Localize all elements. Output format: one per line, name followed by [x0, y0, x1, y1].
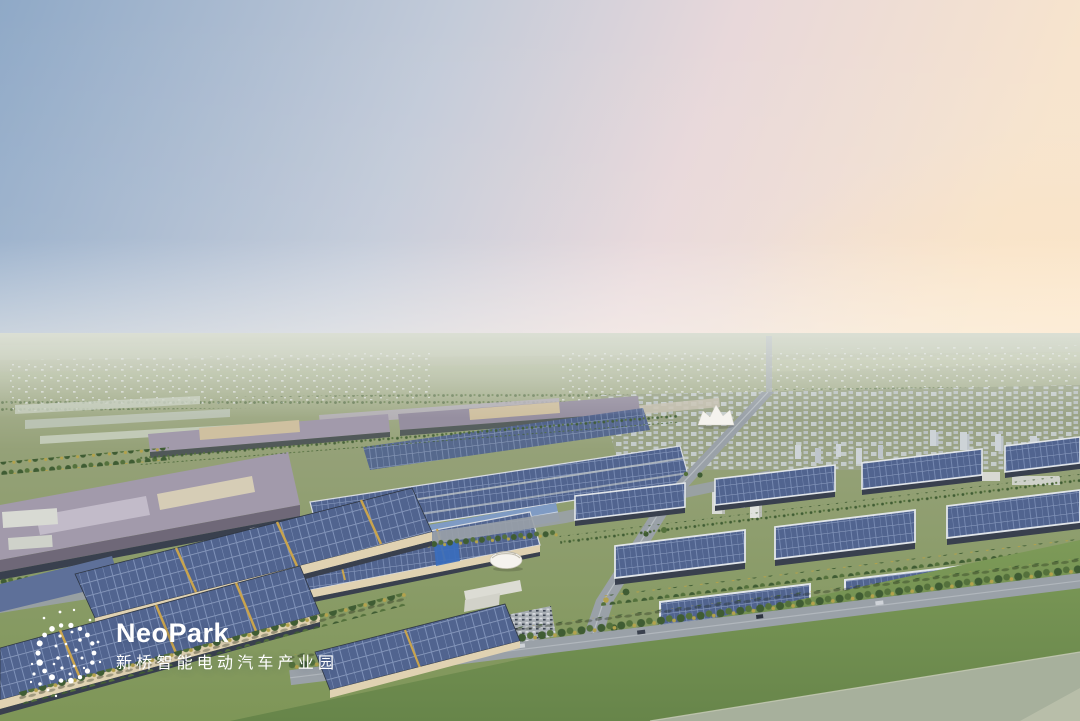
logo-text: NeoPark 新桥智能电动汽车产业园	[116, 604, 338, 672]
logo: NeoPark 新桥智能电动汽车产业园	[30, 604, 338, 702]
brand-subtitle: 新桥智能电动汽车产业园	[116, 656, 338, 672]
aerial-render: NeoPark 新桥智能电动汽车产业园	[0, 0, 1080, 721]
dot-globe-icon	[30, 606, 106, 702]
brand-wordmark: NeoPark	[116, 620, 338, 647]
horizon-haze	[0, 333, 1080, 418]
